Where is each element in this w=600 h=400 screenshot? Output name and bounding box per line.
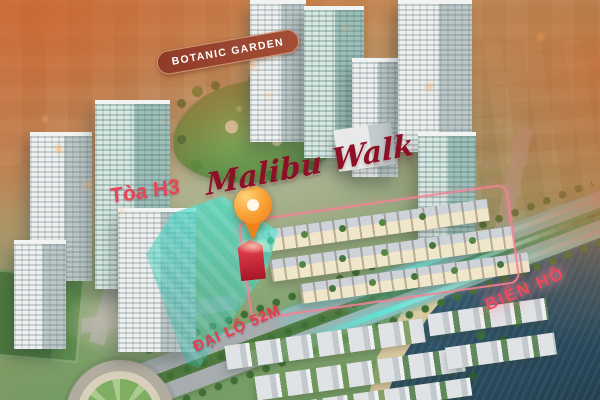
pin-hole <box>247 199 259 211</box>
tower <box>250 0 306 142</box>
aerial-masterplan-render: BOTANIC GARDEN Tòa H3 Malibu Walk ĐẠI LỘ… <box>0 0 600 400</box>
tower <box>14 240 66 349</box>
bokeh-sparkles <box>0 0 2 2</box>
